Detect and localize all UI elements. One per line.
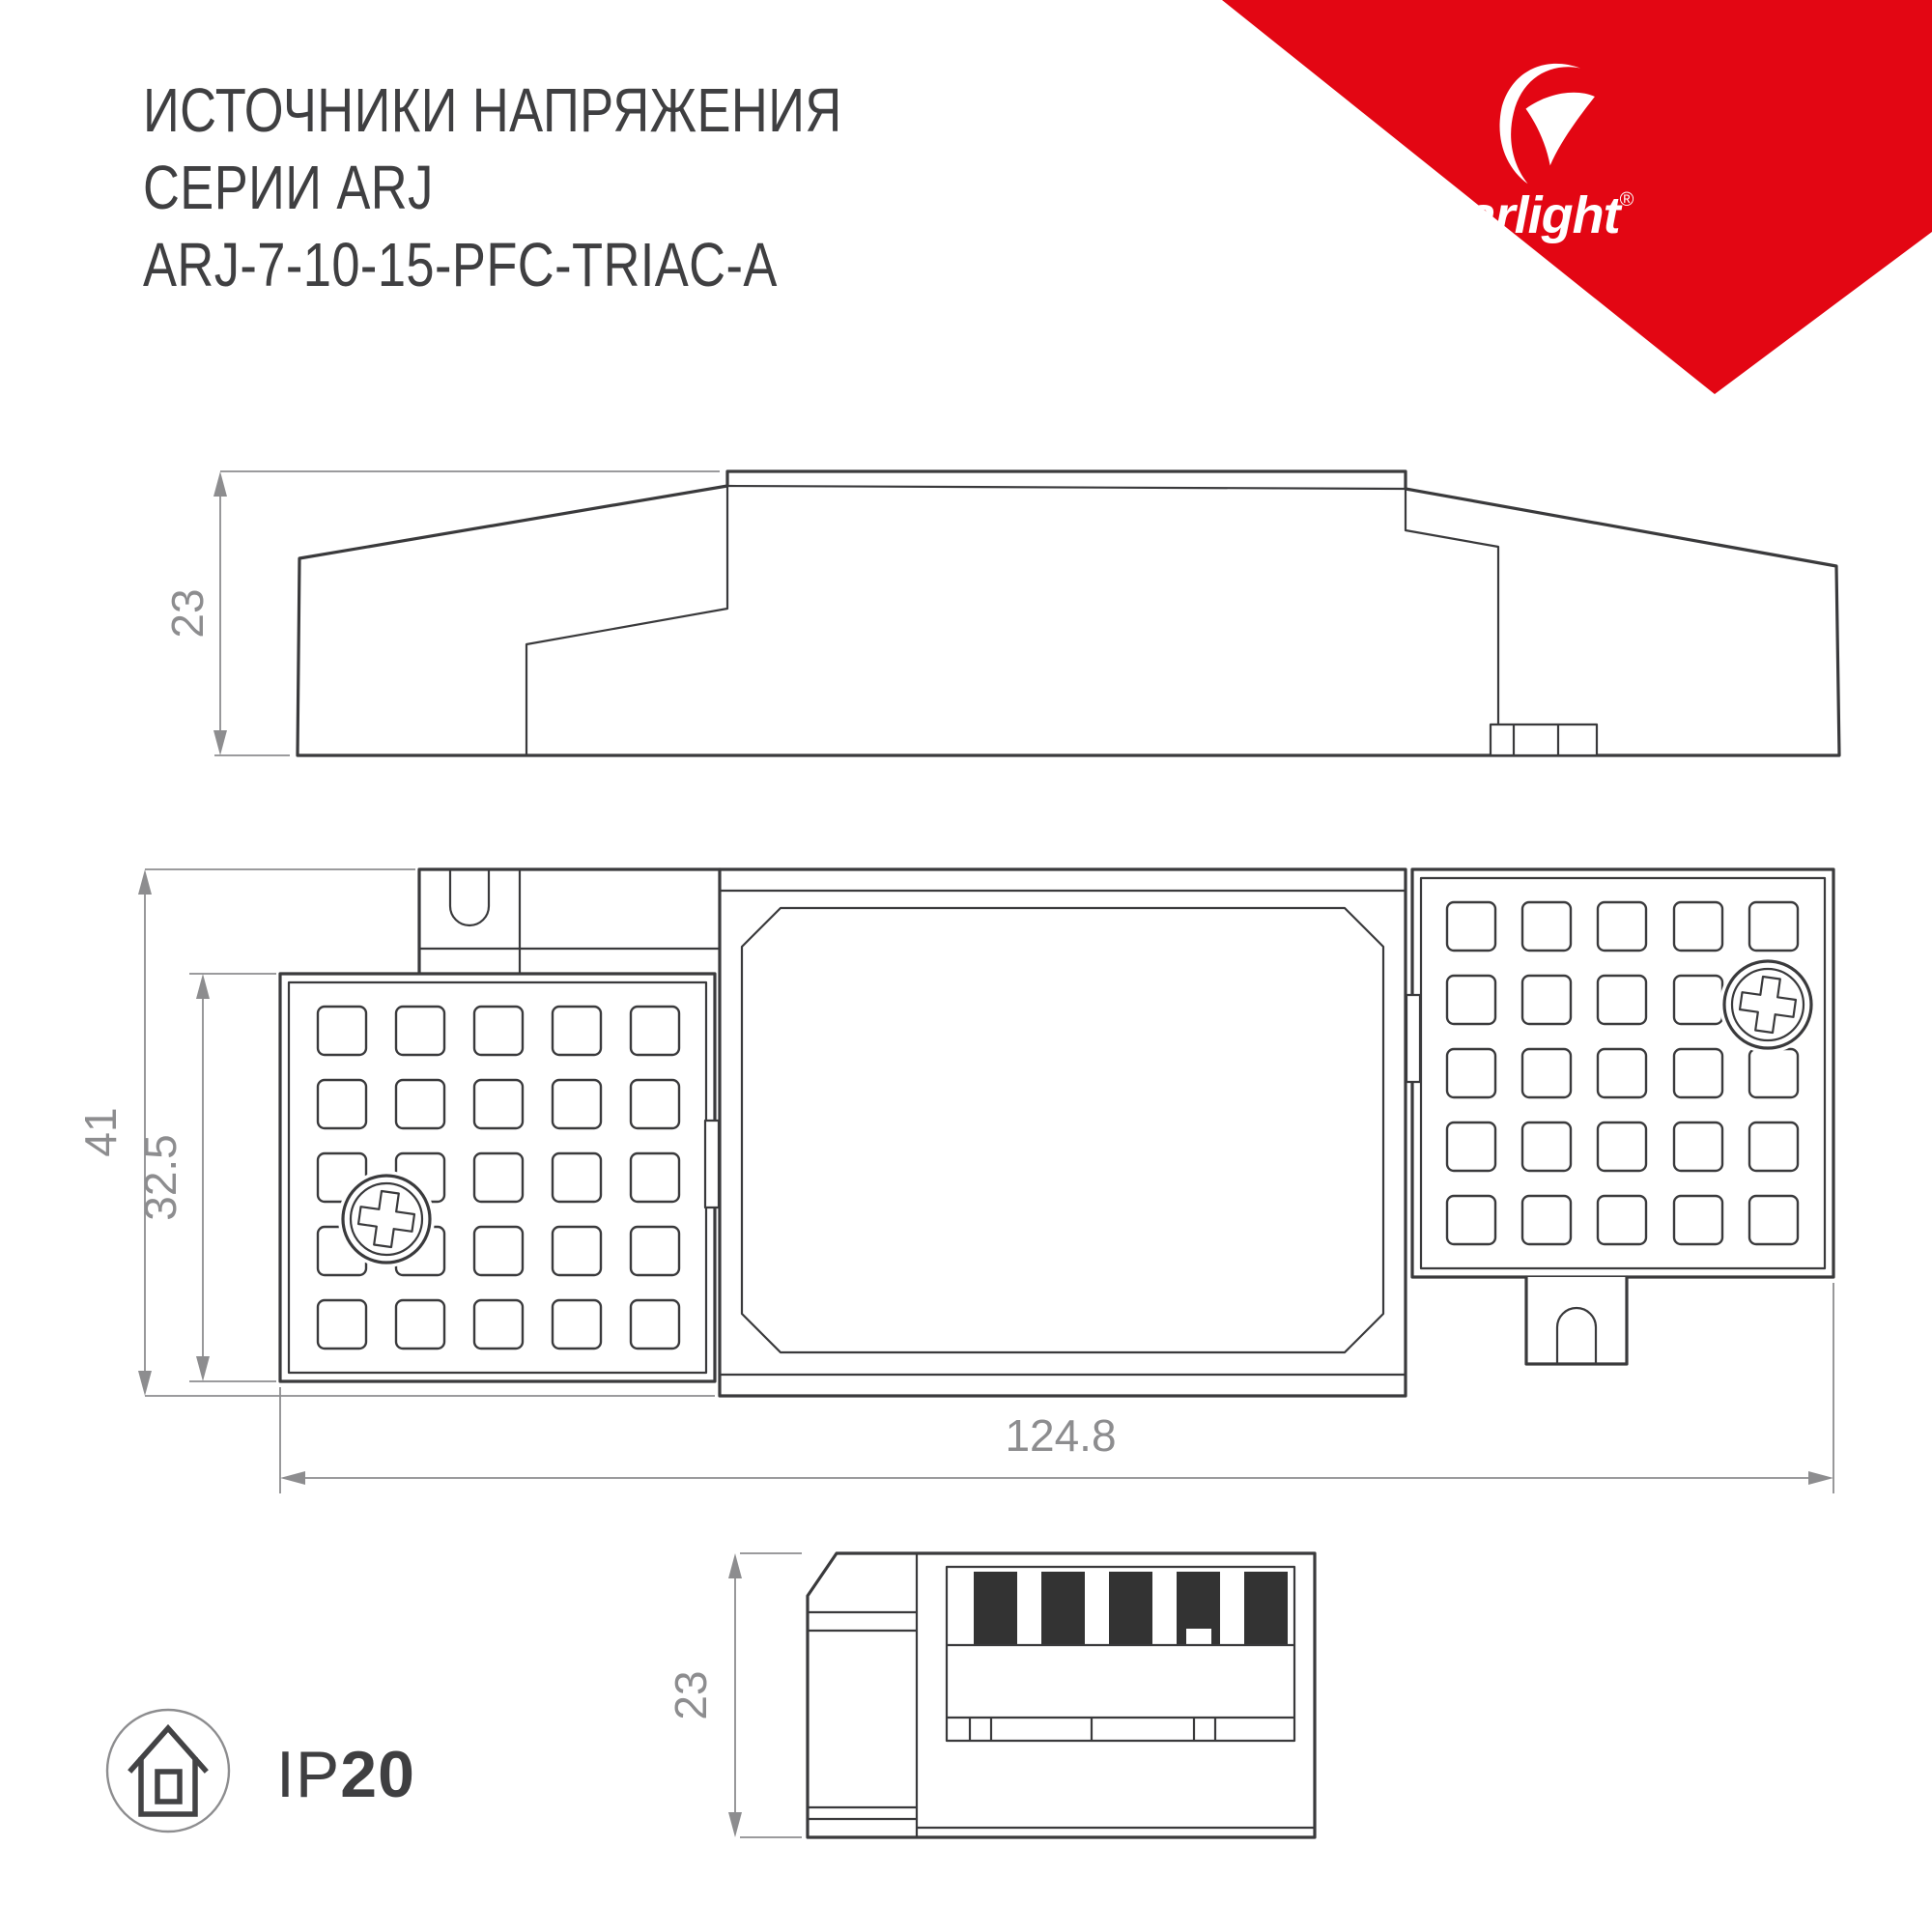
vent-hole	[631, 1300, 679, 1349]
vent-hole	[1674, 976, 1722, 1024]
vent-hole	[1447, 1196, 1495, 1244]
dim-23-end: 23	[666, 1553, 802, 1837]
logo-wordmark: arlight®	[1449, 185, 1652, 245]
vent-hole	[474, 1007, 523, 1055]
vent-hole	[1674, 1049, 1722, 1097]
vent-hole	[1598, 1122, 1646, 1171]
vent-hole	[474, 1080, 523, 1128]
vent-hole	[474, 1300, 523, 1349]
technical-drawing: 23	[0, 0, 1932, 1932]
top-left-vent-block	[280, 974, 719, 1381]
dim-41-label: 41	[75, 1107, 126, 1156]
vent-hole	[474, 1153, 523, 1202]
vent-hole	[553, 1007, 601, 1055]
vent-hole	[1522, 1196, 1571, 1244]
dim-32-5: 32.5	[135, 974, 276, 1381]
house-icon	[131, 1728, 205, 1814]
dim-32-5-label: 32.5	[135, 1134, 185, 1221]
terminal-block	[947, 1567, 1294, 1741]
vent-hole	[1749, 1049, 1798, 1097]
side-view: 23	[162, 471, 1839, 755]
mounting-tab-top	[419, 869, 720, 974]
dim-23-side-label: 23	[162, 588, 213, 638]
vent-hole	[318, 1007, 366, 1055]
vent-hole	[631, 1227, 679, 1275]
top-right-vent-block	[1406, 869, 1833, 1277]
ip-badge	[107, 1710, 229, 1832]
side-terminal-teeth	[1491, 724, 1597, 755]
ip-rating-label: IP20	[276, 1737, 415, 1812]
vent-hole	[1522, 976, 1571, 1024]
registered-mark: ®	[1620, 189, 1634, 211]
vent-hole	[1522, 902, 1571, 951]
vent-hole	[1447, 1049, 1495, 1097]
vent-hole	[553, 1080, 601, 1128]
vent-hole	[396, 1080, 444, 1128]
vent-hole	[1598, 976, 1646, 1024]
vent-hole	[1447, 1122, 1495, 1171]
clip-right-block	[1406, 995, 1420, 1082]
vent-hole	[396, 1007, 444, 1055]
dim-124-8-label: 124.8	[1005, 1410, 1116, 1461]
top-center-section	[720, 869, 1406, 1396]
vent-hole	[1674, 902, 1722, 951]
mounting-tab-bottom	[1526, 1277, 1627, 1364]
stripe-notch	[1186, 1629, 1211, 1645]
vent-hole	[1447, 976, 1495, 1024]
side-outline	[298, 471, 1839, 755]
vent-hole	[553, 1227, 601, 1275]
vent-hole	[1598, 1049, 1646, 1097]
datasheet-page: ИСТОЧНИКИ НАПРЯЖЕНИЯ СЕРИИ ARJ ARJ-7-10-…	[0, 0, 1932, 1932]
end-view: 23	[666, 1553, 1315, 1837]
screw-icon-right	[1719, 956, 1816, 1053]
ip-rating-value: 20	[340, 1738, 415, 1811]
clip-left-block	[705, 1121, 719, 1207]
vent-hole	[553, 1153, 601, 1202]
dim-23-end-label: 23	[666, 1670, 716, 1719]
vent-hole	[474, 1227, 523, 1275]
vent-hole	[1447, 902, 1495, 951]
vent-hole	[396, 1300, 444, 1349]
vent-hole	[1598, 1196, 1646, 1244]
vent-hole	[631, 1080, 679, 1128]
vent-hole	[1749, 1122, 1798, 1171]
brand-name: arlight	[1467, 186, 1620, 244]
top-view: 41 32.5 124.8	[75, 869, 1833, 1493]
vent-hole	[318, 1300, 366, 1349]
vent-hole	[1522, 1122, 1571, 1171]
vent-hole	[1749, 902, 1798, 951]
screw-icon-left	[338, 1171, 435, 1267]
vent-hole	[1598, 902, 1646, 951]
vent-hole	[1674, 1122, 1722, 1171]
vent-hole	[1522, 1049, 1571, 1097]
vent-hole	[1674, 1196, 1722, 1244]
vent-hole	[631, 1007, 679, 1055]
ip-prefix: IP	[276, 1738, 340, 1811]
vent-hole	[318, 1080, 366, 1128]
vent-hole	[631, 1153, 679, 1202]
vent-hole	[1749, 1196, 1798, 1244]
vent-hole	[553, 1300, 601, 1349]
